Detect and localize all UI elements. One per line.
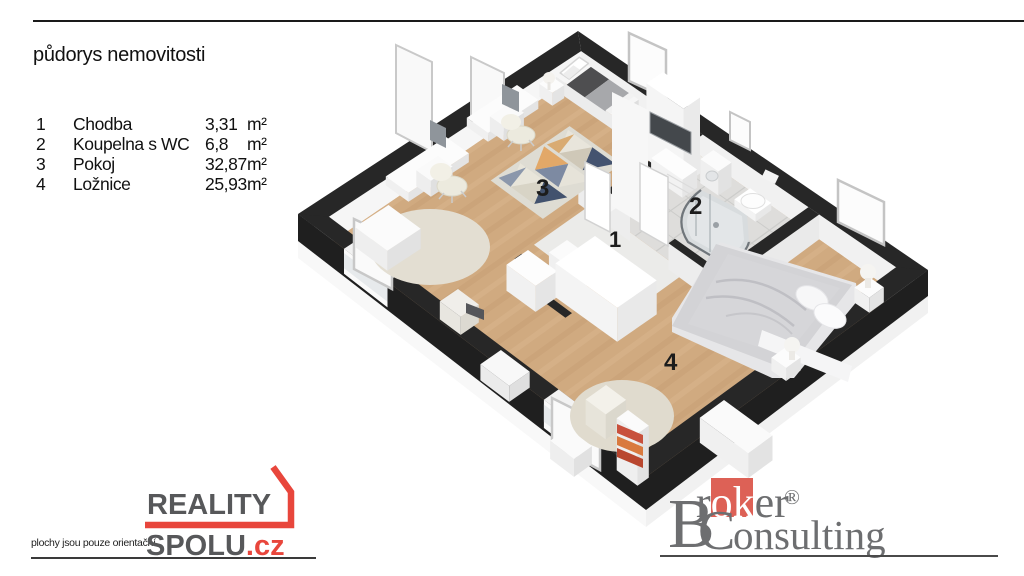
svg-text:onsulting: onsulting xyxy=(733,512,886,558)
svg-text:1: 1 xyxy=(609,227,621,252)
svg-text:®: ® xyxy=(784,485,800,509)
svg-text:4: 4 xyxy=(664,349,678,376)
svg-text:3: 3 xyxy=(536,175,549,202)
svg-text:2: 2 xyxy=(689,193,702,220)
svg-text:C: C xyxy=(698,500,735,562)
